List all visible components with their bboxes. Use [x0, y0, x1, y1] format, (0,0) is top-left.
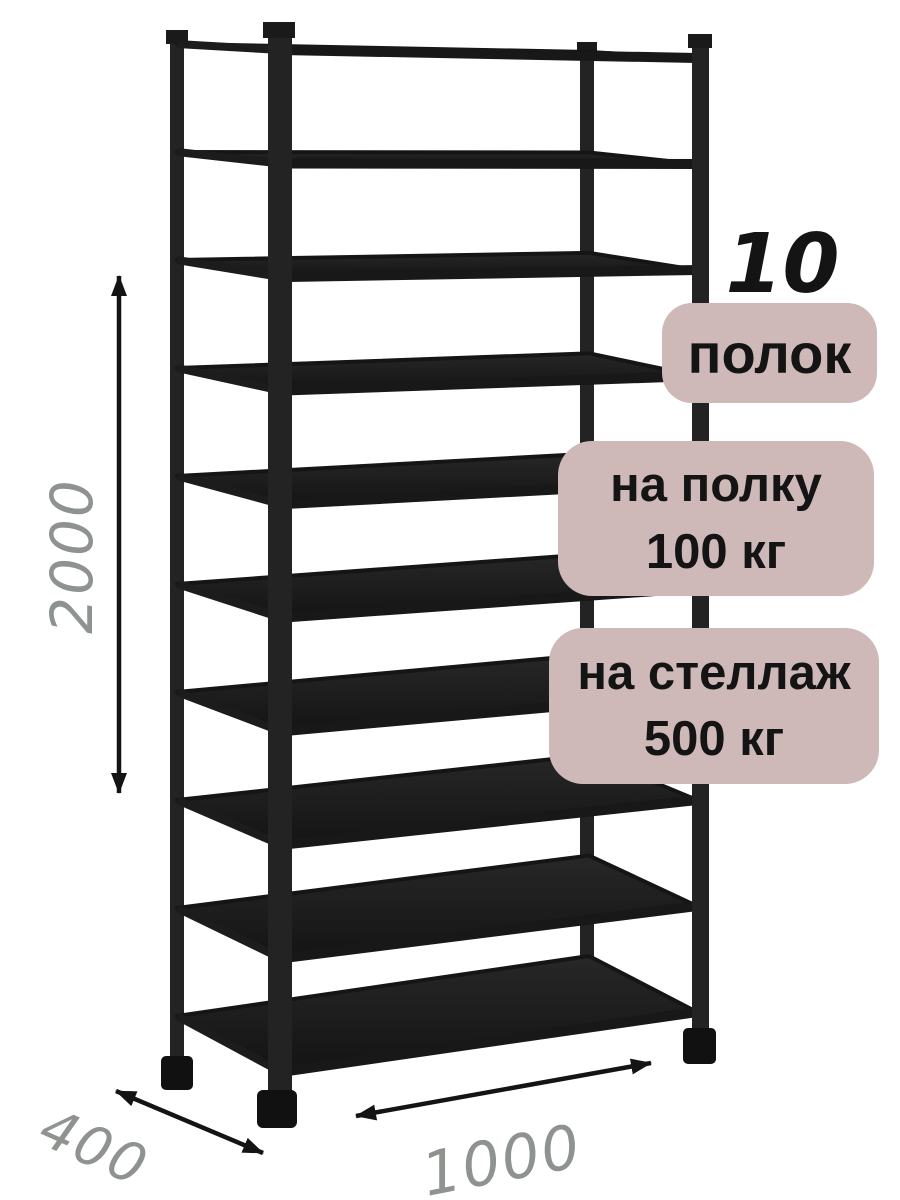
per-rack-load-line2: 500 кг	[644, 706, 784, 772]
per-shelf-load-line2: 100 кг	[646, 519, 786, 585]
back-left-post	[170, 32, 184, 1088]
per-shelf-load-line1: на полку	[610, 452, 822, 518]
back-left-foot	[161, 1056, 193, 1090]
shelf-front-beam	[281, 50, 697, 58]
front-right-foot	[683, 1028, 716, 1064]
front-right-post-cap	[688, 34, 712, 48]
front-left-foot	[257, 1090, 297, 1128]
shelf-count-number: 10	[710, 220, 855, 310]
shelf-count-unit-label: полок	[688, 321, 852, 386]
product-image: 10 полок на полку 100 кг на стеллаж 500 …	[0, 0, 900, 1200]
height-dimension-label: 2000	[40, 446, 104, 666]
shelf-count-badge: полок	[662, 303, 877, 403]
rack-illustration	[0, 0, 900, 1200]
per-shelf-load-badge: на полку 100 кг	[558, 441, 874, 596]
per-rack-load-badge: на стеллаж 500 кг	[549, 628, 879, 784]
front-left-post	[268, 24, 292, 1126]
per-rack-load-line1: на стеллаж	[577, 640, 850, 706]
front-left-post-cap	[263, 22, 295, 38]
shelf-front-beam	[281, 270, 697, 277]
